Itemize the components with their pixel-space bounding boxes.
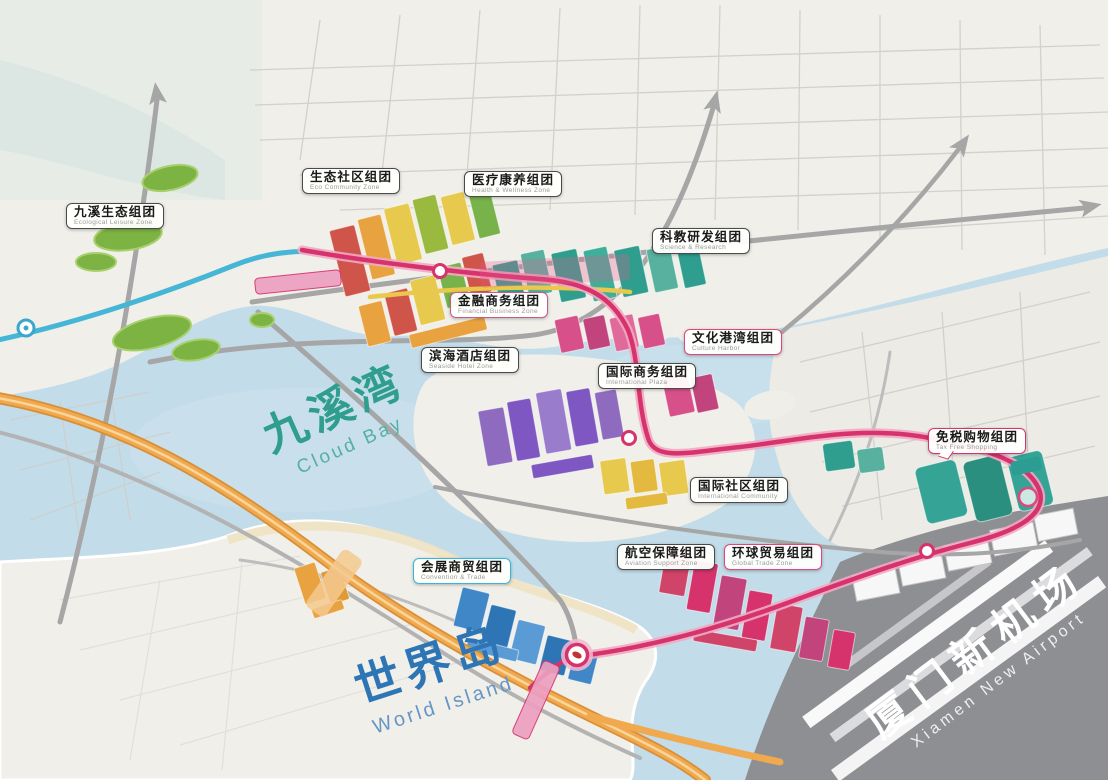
label-zh: 国际社区组团 [698,480,780,493]
label-en: Global Trade Zone [732,561,814,568]
district-label-jiuxi-ecology: 九溪生态组团 Ecological Leisure Zone [66,203,164,229]
label-en: International Plaza [606,380,688,387]
district-label-seaside-hotel: 滨海酒店组团 Seaside Hotel Zone [421,347,519,373]
planning-map: 九溪湾 Cloud Bay 世界岛 World Island 厦门新机场 Xia… [0,0,1108,780]
label-en: Convention & Trade [421,575,503,582]
label-en: International Community [698,494,780,501]
label-en: Science & Research [660,245,742,252]
label-zh: 九溪生态组团 [74,206,156,219]
district-label-health-wellness: 医疗康养组团 Health & Wellness Zone [464,171,562,197]
district-label-convention-trade: 会展商贸组团 Convention & Trade [413,558,511,584]
label-zh: 医疗康养组团 [472,174,554,187]
label-zh: 国际商务组团 [606,366,688,379]
label-zh: 免税购物组团 [936,431,1018,444]
label-zh: 生态社区组团 [310,171,392,184]
label-en: Seaside Hotel Zone [429,364,511,371]
label-en: Ecological Leisure Zone [74,220,156,227]
district-label-culture-harbor: 文化港湾组团 Culture Harbor [684,329,782,355]
label-en: Health & Wellness Zone [472,188,554,195]
label-zh: 航空保障组团 [625,547,707,560]
district-label-duty-free-shopping: 免税购物组团 Tax Free Shopping [928,428,1026,454]
district-label-aviation-support: 航空保障组团 Aviation Support Zone [617,544,715,570]
district-label-eco-community: 生态社区组团 Eco Community Zone [302,168,400,194]
label-en: Culture Harbor [692,346,774,353]
district-label-science-research: 科教研发组团 Science & Research [652,228,750,254]
label-zh: 科教研发组团 [660,231,742,244]
label-zh: 会展商贸组团 [421,561,503,574]
district-label-global-trade: 环球贸易组团 Global Trade Zone [724,544,822,570]
label-zh: 金融商务组团 [458,295,540,308]
label-zh: 文化港湾组团 [692,332,774,345]
label-zh: 滨海酒店组团 [429,350,511,363]
label-zh: 环球贸易组团 [732,547,814,560]
district-label-international-community: 国际社区组团 International Community [690,477,788,503]
label-en: Financial Business Zone [458,309,540,316]
label-en: Aviation Support Zone [625,561,707,568]
label-en: Eco Community Zone [310,185,392,192]
district-label-financial-business: 金融商务组团 Financial Business Zone [450,292,548,318]
district-label-international-business: 国际商务组团 International Plaza [598,363,696,389]
